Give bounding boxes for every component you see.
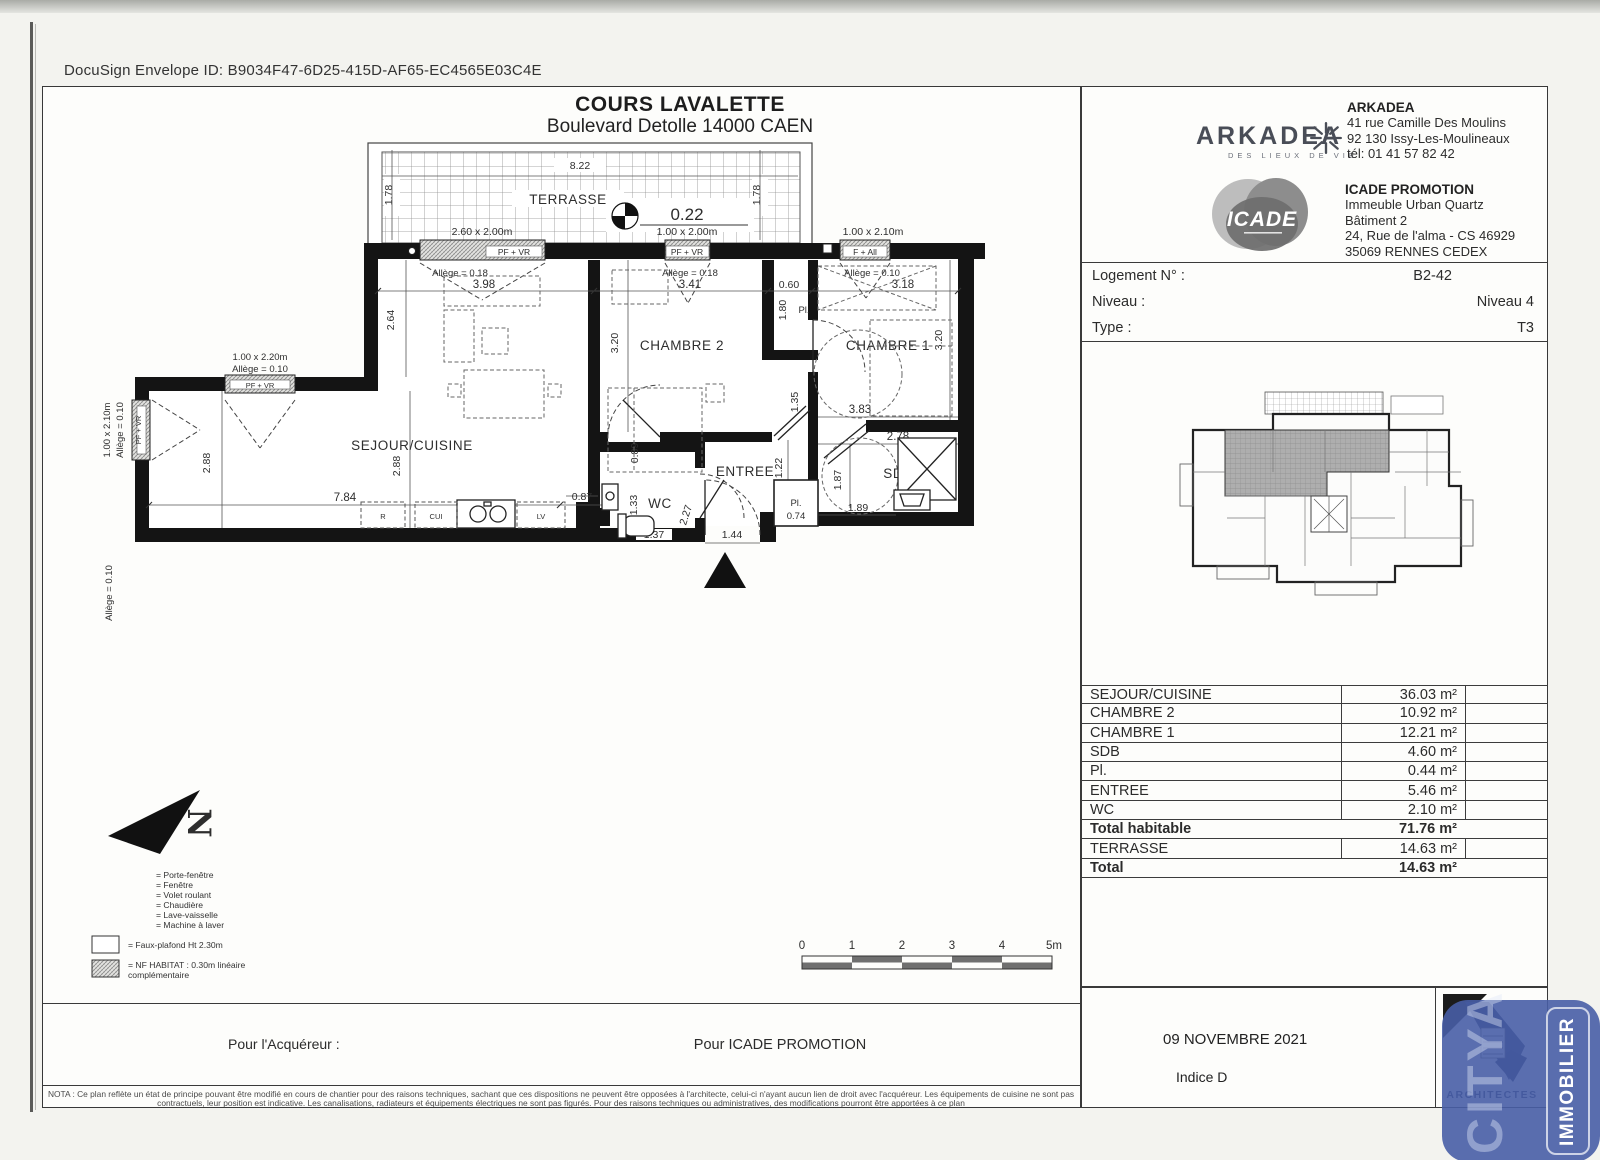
dim-288a: 2.88	[201, 453, 213, 474]
dim-144: 1.44	[722, 529, 743, 541]
scale-5m: 5m	[1046, 940, 1062, 952]
arkadea-line: 41 rue Camille Des Moulins	[1347, 115, 1537, 131]
type-value: T3	[1517, 320, 1534, 336]
icade-logo-icon: ICADE	[1208, 174, 1316, 254]
level-value: 0.22	[670, 205, 703, 224]
dim-060: 0.60	[779, 279, 800, 291]
scale-0: 0	[799, 940, 805, 952]
area-label: SDB	[1080, 743, 1342, 761]
w3-size: 1.00 x 2.10m	[843, 226, 904, 238]
w5-type: PF + VR	[134, 415, 143, 444]
type-label: Type :	[1080, 320, 1132, 336]
scan-top-edge	[0, 0, 1600, 13]
arkadea-address: ARKADEA 41 rue Camille Des Moulins 92 13…	[1347, 100, 1537, 162]
area-label: TERRASSE	[1080, 839, 1342, 857]
w4-size: 1.00 x 2.20m	[233, 352, 288, 363]
scale-bar: 0 1 2 3 4 5m	[799, 940, 1062, 969]
legend-item: = Porte-fenêtre	[156, 870, 214, 880]
area-value: 0.44 m²	[1342, 762, 1466, 780]
sejour-floor	[135, 377, 367, 542]
unit-row-type: Type : T3	[1080, 315, 1548, 341]
scan-left-edge	[30, 22, 33, 1112]
room-sejour: SEJOUR/CUISINE	[351, 438, 473, 453]
pl-hall-label: Pl.	[798, 305, 809, 316]
area-value: 2.10 m²	[1342, 801, 1466, 819]
area-label: CHAMBRE 1	[1080, 724, 1342, 742]
scan-left-edge-light	[35, 24, 36, 1110]
table-row: WC2.10 m²	[1080, 801, 1548, 820]
scale-4: 4	[999, 940, 1006, 952]
dim-383: 3.83	[849, 404, 871, 416]
panel-divider	[1080, 86, 1082, 1108]
table-row-total: Total14.63 m²	[1080, 859, 1548, 878]
area-label: WC	[1080, 801, 1342, 819]
room-chambre2: CHAMBRE 2	[640, 338, 724, 353]
dim-178-left: 1.78	[383, 185, 395, 206]
nota-line-2: contractuels, leur position est indicati…	[42, 1098, 1080, 1108]
dim-187: 1.87	[832, 470, 844, 491]
citya-stamp: CITYA IMMOBILIER	[1442, 1000, 1600, 1160]
scale-3: 3	[949, 940, 955, 952]
arkadea-star-icon	[1308, 120, 1344, 156]
area-label: Pl.	[1080, 762, 1342, 780]
dim-180: 1.80	[777, 300, 789, 321]
area-value: 10.92 m²	[1342, 704, 1466, 722]
dim-133: 1.33	[628, 495, 640, 516]
unit-row-niveau: Niveau : Niveau 4	[1080, 289, 1548, 315]
legend-item: = Chaudière	[156, 900, 203, 910]
w5-size: 1.00 x 2.10m	[102, 402, 113, 457]
legend-item: = Machine à laver	[156, 920, 224, 930]
immobilier-text: IMMOBILIER	[1557, 1017, 1579, 1146]
dim-089: 0.89	[629, 443, 641, 464]
arkadea-line: tél: 01 41 57 82 42	[1347, 146, 1537, 162]
keyplan-balcony-top	[1391, 396, 1443, 414]
scanned-floor-plan-document: { "page": { "docusign": "DocuSign Envelo…	[0, 0, 1600, 1160]
dim-318: 3.18	[892, 279, 914, 291]
icade-logo-text: ICADE	[1227, 208, 1297, 231]
icade-name: ICADE PROMOTION	[1345, 182, 1545, 197]
dim-135: 1.35	[789, 392, 801, 413]
dim-122: 1.22	[773, 458, 785, 479]
citya-text: CITYA	[1456, 1008, 1514, 1154]
area-label: Total	[1080, 859, 1342, 877]
table-row: SDB4.60 m²	[1080, 743, 1548, 762]
dim-320a: 3.20	[609, 333, 621, 354]
icade-line: Immeuble Urban Quartz	[1345, 197, 1545, 213]
dim-189: 1.89	[848, 502, 869, 514]
w3-type: F + All	[853, 247, 877, 257]
divider	[1435, 986, 1436, 1107]
legend: = Porte-fenêtre = Fenêtre = Volet roulan…	[92, 870, 245, 980]
north-letter: N	[180, 808, 218, 837]
plan-indice: Indice D	[1176, 1069, 1227, 1085]
key-plan	[1165, 368, 1475, 618]
niveau-label: Niveau :	[1080, 294, 1145, 310]
area-value: 4.60 m²	[1342, 743, 1466, 761]
pl-closet-label: Pl.	[790, 498, 801, 509]
legend-nf-symbol	[92, 960, 119, 977]
area-value: 14.63 m²	[1342, 859, 1466, 877]
divider	[42, 1085, 1080, 1086]
legend-nf-2: complémentaire	[128, 970, 189, 980]
arkadea-line: 92 130 Issy-Les-Moulineaux	[1347, 131, 1537, 147]
footer-pour-icade: Pour ICADE PROMOTION	[600, 1037, 960, 1053]
w5-allege: Allège = 0.10	[115, 402, 126, 458]
docusign-envelope-id: DocuSign Envelope ID: B9034F47-6D25-415D…	[64, 62, 542, 79]
kitchen-lv: LV	[537, 512, 546, 521]
area-value: 12.21 m²	[1342, 724, 1466, 742]
icade-line: 24, Rue de l'alma - CS 46929	[1345, 228, 1545, 244]
table-row-total-habitable: Total habitable71.76 m²	[1080, 820, 1548, 839]
kitchen-r: R	[380, 512, 386, 521]
icade-address: ICADE PROMOTION Immeuble Urban Quartz Bâ…	[1345, 182, 1545, 259]
area-value: 14.63 m²	[1342, 839, 1466, 857]
logement-label: Logement N° :	[1080, 268, 1185, 284]
divider	[42, 1003, 1080, 1004]
wall-marker-square	[823, 244, 832, 253]
footer-acquereur: Pour l'Acquéreur :	[228, 1036, 340, 1052]
w1-size: 2.60 x 2.00m	[452, 226, 513, 238]
dim-784: 7.84	[334, 492, 357, 504]
w4-type: PF + VR	[246, 381, 275, 390]
dim-398: 3.98	[473, 279, 495, 291]
area-table: SEJOUR/CUISINE36.03 m² CHAMBRE 210.92 m²…	[1080, 685, 1548, 878]
table-row: SEJOUR/CUISINE36.03 m²	[1080, 685, 1548, 704]
arkadea-name: ARKADEA	[1347, 100, 1537, 115]
floor-plan: 8.22 TERRASSE 1.78 1.78 0.22	[60, 88, 1080, 1108]
scale-2: 2	[899, 940, 905, 952]
immobilier-band: IMMOBILIER	[1546, 1007, 1590, 1155]
room-wc: WC	[648, 496, 672, 511]
niveau-value: Niveau 4	[1477, 294, 1534, 310]
room-entree: ENTREE	[716, 464, 774, 479]
area-value: 5.46 m²	[1342, 781, 1466, 799]
legend-faux-plafond-symbol	[92, 936, 119, 953]
unit-row-logement: Logement N° : B2-42	[1080, 263, 1548, 289]
dim-320b: 3.20	[933, 330, 945, 351]
w3-allege: Allège = 0.10	[844, 268, 900, 279]
table-row: CHAMBRE 112.21 m²	[1080, 724, 1548, 743]
keyplan-terrace	[1265, 392, 1383, 414]
legend-nf-1: = NF HABITAT : 0.30m linéaire	[128, 960, 245, 970]
dim-087: 0.87	[572, 491, 593, 503]
dim-178-right: 1.78	[751, 185, 763, 206]
area-value: 71.76 m²	[1342, 820, 1466, 838]
table-row: ENTREE5.46 m²	[1080, 781, 1548, 800]
dim-288b: 2.88	[391, 456, 403, 477]
table-row: Pl.0.44 m²	[1080, 762, 1548, 781]
icade-line: 35069 RENNES CEDEX	[1345, 244, 1545, 260]
w2-size: 1.00 x 2.00m	[657, 226, 718, 238]
w1-allege: Allège = 0.18	[432, 268, 488, 279]
scale-1: 1	[849, 940, 855, 952]
area-value: 36.03 m²	[1342, 686, 1466, 703]
table-row: TERRASSE14.63 m²	[1080, 839, 1548, 858]
divider	[1080, 341, 1548, 342]
unit-info: Logement N° : B2-42 Niveau : Niveau 4 Ty…	[1080, 263, 1548, 341]
w1-type: PF + VR	[498, 247, 530, 257]
area-label: ENTREE	[1080, 781, 1342, 799]
kitchen-cui: CUI	[430, 512, 443, 521]
area-label: SEJOUR/CUISINE	[1080, 686, 1342, 703]
legend-item: = Fenêtre	[156, 880, 193, 890]
legend-item: = Volet roulant	[156, 890, 212, 900]
entrance-arrow	[704, 552, 746, 588]
dim-074: 0.74	[787, 511, 806, 522]
wall-marker-circle	[409, 248, 416, 255]
terrace-label: TERRASSE	[529, 192, 607, 207]
plan-date: 09 NOVEMBRE 2021	[1163, 1031, 1307, 1048]
area-label: Total habitable	[1080, 820, 1342, 838]
area-label: CHAMBRE 2	[1080, 704, 1342, 722]
logement-value: B2-42	[1413, 268, 1452, 284]
w2-type: PF + VR	[671, 247, 703, 257]
legend-faux-plafond: = Faux-plafond Ht 2.30m	[128, 940, 223, 950]
dim-822: 8.22	[570, 160, 591, 172]
w4-allege: Allège = 0.10	[232, 364, 288, 375]
allege-left-bottom: Allège = 0.10	[104, 565, 115, 621]
dim-264: 2.64	[385, 310, 397, 331]
table-row: CHAMBRE 210.92 m²	[1080, 704, 1548, 723]
legend-item: = Lave-vaisselle	[156, 910, 218, 920]
icade-line: Bâtiment 2	[1345, 213, 1545, 229]
